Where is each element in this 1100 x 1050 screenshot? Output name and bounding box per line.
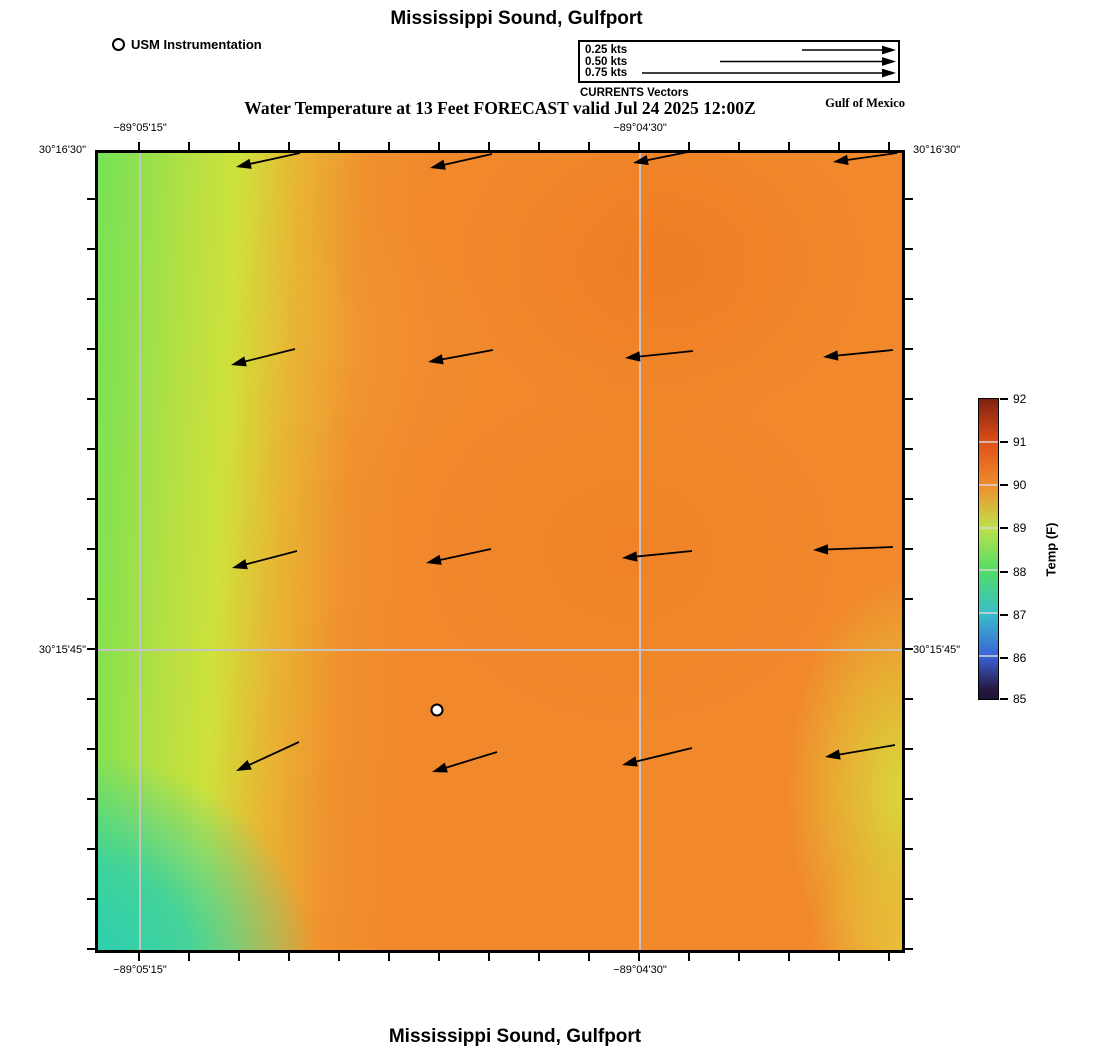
lon-label-bottom-2: −89°04'30" xyxy=(570,964,710,976)
page: { "page": { "top_title": "Mississippi So… xyxy=(0,0,1100,1050)
axis-ticks-right xyxy=(905,150,913,953)
current-vector-arrow-icon xyxy=(231,349,295,366)
colorbar-sep xyxy=(979,441,998,443)
axis-ticks-bottom xyxy=(95,953,905,961)
vector-legend-box: 0.25 kts 0.50 kts 0.75 kts xyxy=(578,40,900,83)
current-vector-arrow-icon xyxy=(430,154,492,170)
colorbar-tick xyxy=(1000,657,1008,659)
page-bottom-title: Mississippi Sound, Gulfport xyxy=(0,1026,1030,1048)
axis-ticks-left xyxy=(87,150,95,953)
colorbar-sep xyxy=(979,569,998,571)
usm-marker-icon xyxy=(112,38,125,51)
legend-arrow-050-icon xyxy=(720,57,896,66)
station-marker-icon xyxy=(431,704,444,717)
current-vector-arrow-icon xyxy=(236,153,300,169)
colorbar-label-90: 90 xyxy=(1013,478,1026,492)
current-vector-arrow-icon xyxy=(432,752,497,773)
colorbar-label-88: 88 xyxy=(1013,565,1026,579)
vector-legend-arrows xyxy=(580,42,898,81)
colorbar-tick xyxy=(1000,527,1008,529)
colorbar-label-89: 89 xyxy=(1013,521,1026,535)
current-vector-arrow-icon xyxy=(232,551,297,569)
current-vector-arrow-icon xyxy=(625,351,693,362)
lon-label-bottom-1: −89°05'15" xyxy=(70,964,210,976)
current-vector-arrow-icon xyxy=(236,742,299,771)
lat-label-right-1: 30°16'30" xyxy=(913,144,1003,156)
current-vector-arrow-icon xyxy=(426,549,491,565)
colorbar-sep xyxy=(979,655,998,657)
colorbar-sep xyxy=(979,527,998,529)
colorbar-tick xyxy=(1000,614,1008,616)
colorbar-sep xyxy=(979,484,998,486)
lat-label-left-2: 30°15'45" xyxy=(4,644,86,656)
temperature-map xyxy=(95,150,905,953)
current-vector-layer xyxy=(95,150,905,953)
colorbar-label-92: 92 xyxy=(1013,392,1026,406)
forecast-subtitle: Water Temperature at 13 Feet FORECAST va… xyxy=(95,98,905,119)
colorbar-tick xyxy=(1000,571,1008,573)
current-vector-arrow-icon xyxy=(823,350,893,361)
current-vector-arrow-icon xyxy=(428,350,493,364)
colorbar-tick xyxy=(1000,441,1008,443)
current-vector-arrow-icon xyxy=(633,151,693,165)
station-legend: USM Instrumentation xyxy=(112,37,262,52)
colorbar-label-85: 85 xyxy=(1013,692,1026,706)
colorbar-tick xyxy=(1000,484,1008,486)
lon-label-top-1: −89°05'15" xyxy=(70,122,210,134)
colorbar-tick xyxy=(1000,398,1008,400)
colorbar-axis-label: Temp (F) xyxy=(1044,480,1059,620)
current-vector-arrow-icon xyxy=(622,748,692,767)
colorbar xyxy=(978,398,999,700)
current-vector-arrow-icon xyxy=(825,745,895,760)
legend-arrow-025-icon xyxy=(802,46,896,55)
colorbar-tick xyxy=(1000,698,1008,700)
axis-ticks-top xyxy=(95,142,905,150)
page-title: Mississippi Sound, Gulfport xyxy=(0,8,1033,30)
current-vector-arrow-icon xyxy=(813,544,893,554)
lon-label-top-2: −89°04'30" xyxy=(570,122,710,134)
legend-arrow-075-icon xyxy=(642,69,896,78)
colorbar-label-87: 87 xyxy=(1013,608,1026,622)
colorbar-sep xyxy=(979,612,998,614)
current-vector-arrow-icon xyxy=(833,153,897,165)
current-vector-arrow-icon xyxy=(622,551,692,562)
colorbar-label-86: 86 xyxy=(1013,651,1026,665)
station-legend-label: USM Instrumentation xyxy=(131,37,262,52)
lat-label-left-1: 30°16'30" xyxy=(4,144,86,156)
colorbar-label-91: 91 xyxy=(1013,435,1026,449)
